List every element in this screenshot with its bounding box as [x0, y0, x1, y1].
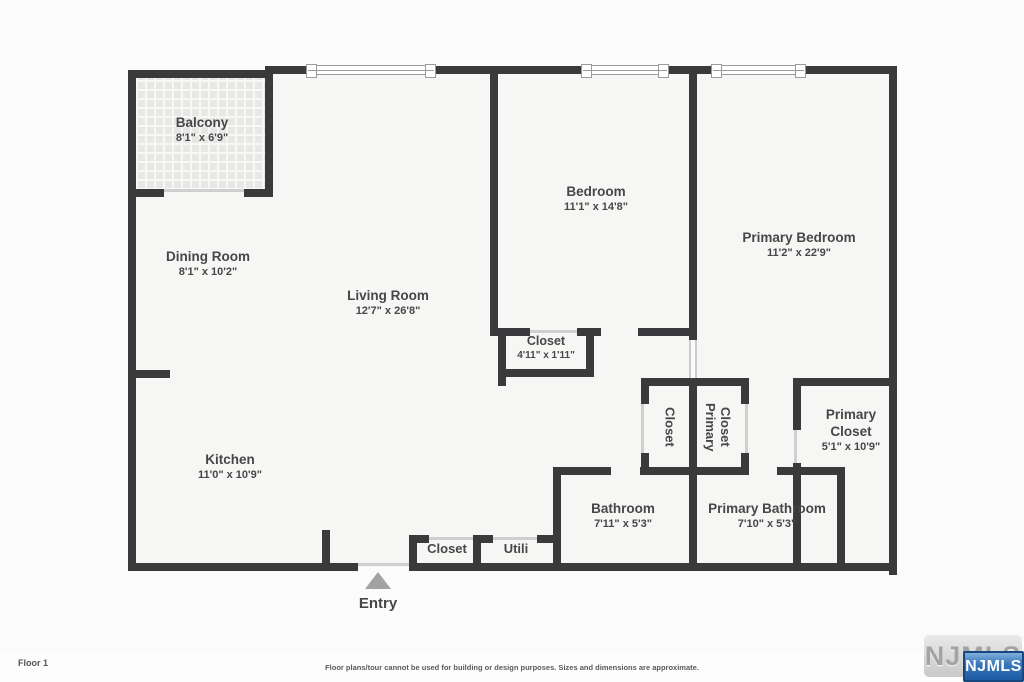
wall — [473, 535, 481, 563]
room-name: Kitchen — [198, 452, 262, 469]
room-dims: 8'1" x 6'9" — [176, 132, 229, 146]
room-name: Dining Room — [166, 249, 250, 266]
window-cap — [306, 64, 317, 78]
room-dims: 11'0" x 10'9" — [198, 469, 262, 483]
room-dims: 11'1" x 14'8" — [564, 201, 628, 215]
room-name: Primary Bedroom — [742, 230, 855, 247]
wall — [837, 467, 845, 571]
door-opening — [429, 537, 473, 540]
room-label-hall-closet: Closet — [662, 407, 677, 447]
room-name: Closet — [427, 541, 467, 557]
room-name: Bedroom — [564, 184, 628, 201]
window-cap — [795, 64, 806, 78]
room-label-primary-closet-small: Primary Closet — [702, 396, 732, 458]
wall — [553, 467, 561, 571]
room-label-bedroom: Bedroom 11'1" x 14'8" — [564, 184, 628, 215]
room-dims: 5'1" x 10'9" — [807, 441, 895, 455]
room-label-living-room: Living Room 12'7" x 26'8" — [347, 288, 429, 319]
wall — [498, 369, 594, 377]
window — [582, 65, 668, 75]
window-cap — [581, 64, 592, 78]
wall — [889, 66, 897, 575]
wall — [128, 70, 136, 197]
wall — [641, 378, 649, 404]
window-cap — [425, 64, 436, 78]
entry-label: Entry — [359, 595, 397, 612]
window — [712, 65, 805, 75]
room-label-primary-closet: Primary Closet 5'1" x 10'9" — [807, 407, 895, 455]
room-dims: 12'7" x 26'8" — [347, 305, 429, 319]
room-name: Utili — [504, 541, 529, 557]
door-opening — [745, 404, 748, 453]
wall — [689, 66, 697, 340]
room-dims: 4'11" x 1'11" — [517, 350, 575, 363]
room-name: Closet — [517, 334, 575, 350]
wall — [322, 530, 330, 563]
wall — [793, 378, 801, 430]
njmls-logo: NJMLS — [963, 651, 1024, 682]
window — [307, 65, 435, 75]
wall — [409, 535, 417, 563]
disclaimer-text: Floor plans/tour cannot be used for buil… — [0, 663, 1024, 672]
room-name: Bathroom — [591, 501, 655, 518]
entry-arrow-icon — [365, 572, 391, 589]
room-name: Primary Bathroom — [708, 501, 826, 518]
wall — [498, 328, 506, 386]
room-label-bedroom-closet: Closet 4'11" x 1'11" — [517, 334, 575, 362]
wall — [537, 535, 561, 543]
wall — [265, 66, 273, 197]
window-cap — [658, 64, 669, 78]
room-label-bathroom: Bathroom 7'11" x 5'3" — [591, 501, 655, 532]
door-opening — [530, 330, 577, 333]
floor-plan: Balcony 8'1" x 6'9" Dining Room 8'1" x 1… — [0, 0, 1024, 652]
room-name: Living Room — [347, 288, 429, 305]
door-opening — [164, 189, 244, 192]
wall — [128, 563, 358, 571]
room-label-kitchen: Kitchen 11'0" x 10'9" — [198, 452, 262, 483]
wall — [490, 74, 498, 336]
wall — [128, 370, 170, 378]
room-label-utility: Utili — [504, 541, 529, 557]
wall — [777, 467, 845, 475]
room-dims: 8'1" x 10'2" — [166, 266, 250, 280]
entry-door-opening — [358, 563, 409, 566]
room-label-primary-bathroom: Primary Bathroom 7'10" x 5'3" — [708, 501, 826, 532]
room-label-balcony: Balcony 8'1" x 6'9" — [176, 115, 229, 146]
room-label-dining-room: Dining Room 8'1" x 10'2" — [166, 249, 250, 280]
door-opening — [794, 430, 797, 463]
room-dims: 11'2" x 22'9" — [742, 247, 855, 261]
wall — [128, 189, 136, 571]
wall — [741, 378, 749, 404]
room-name: Balcony — [176, 115, 229, 132]
wall — [793, 378, 897, 386]
room-label-entry-closet: Closet — [427, 541, 467, 557]
wall — [553, 467, 611, 475]
room-dims: 7'10" x 5'3" — [708, 518, 826, 532]
window-cap — [711, 64, 722, 78]
door-opening — [641, 404, 644, 453]
room-label-primary-bedroom: Primary Bedroom 11'2" x 22'9" — [742, 230, 855, 261]
wall — [409, 563, 897, 571]
room-dims: 7'11" x 5'3" — [591, 518, 655, 532]
wall — [689, 378, 697, 475]
wall — [689, 467, 697, 571]
door-opening — [689, 340, 697, 378]
door-opening — [493, 537, 537, 540]
wall — [128, 70, 273, 78]
room-name: Primary Closet — [807, 407, 895, 441]
